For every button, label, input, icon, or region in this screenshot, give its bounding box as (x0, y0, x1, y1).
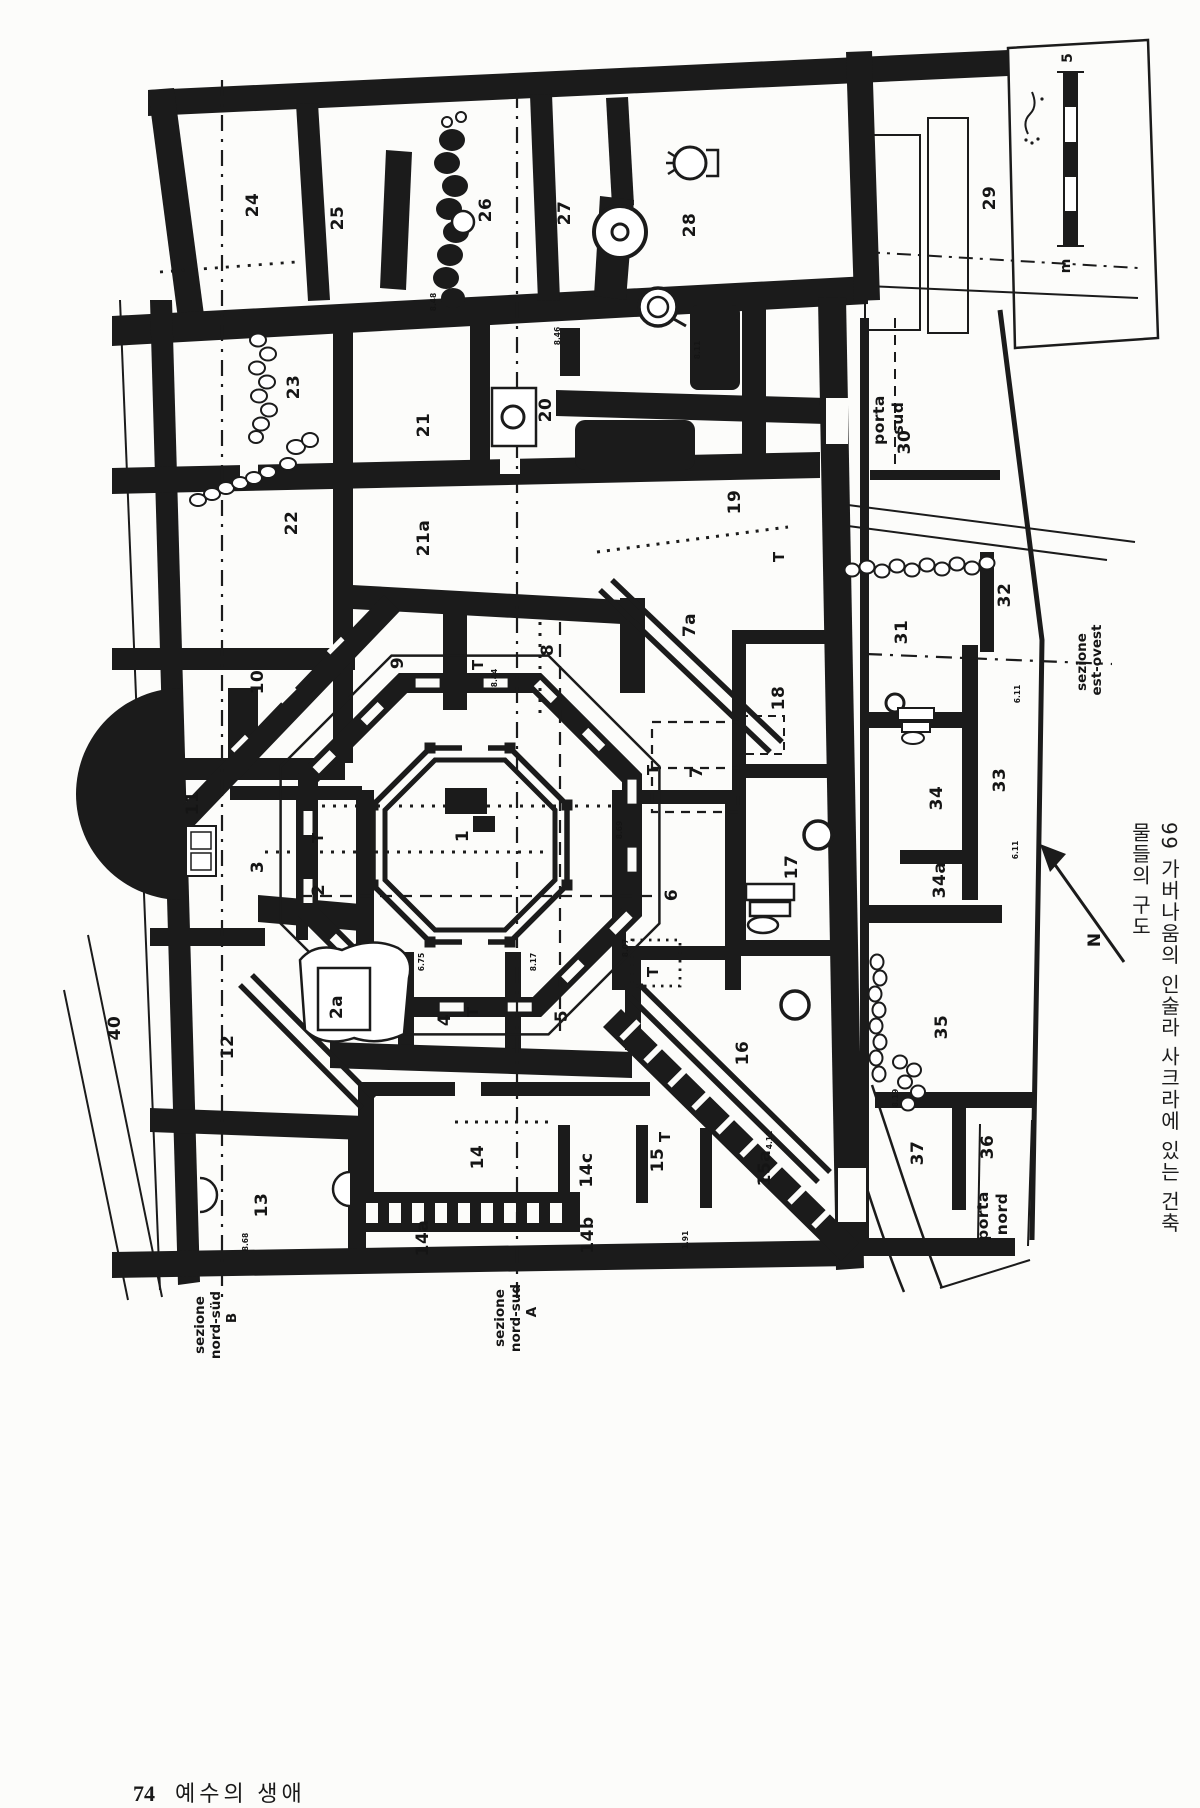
elevation-mark-8.11: 8.11 (693, 341, 702, 360)
room-label-20: 20 (536, 398, 556, 423)
room-label-23: 23 (284, 375, 304, 400)
room-label-19: 19 (725, 490, 745, 515)
room-label-34: 34 (927, 786, 947, 811)
book-title: 예수의 생애 (175, 1776, 306, 1808)
column-base (452, 211, 474, 233)
north-label: N (1085, 933, 1105, 947)
room-label-7: 7 (687, 766, 707, 778)
room-label-32: 32 (995, 583, 1015, 608)
trench-marker-T: T (644, 966, 662, 977)
elevation-mark-6.11: 6.11 (1013, 685, 1022, 704)
room-label-14c: 14c (577, 1152, 597, 1187)
elevation-mark-8.46: 8.46 (553, 327, 562, 346)
scale-unit-label: m (1058, 259, 1074, 274)
inner-octagon-outer-line (373, 748, 567, 942)
elevation-mark-8.48: 8.48 (429, 293, 438, 312)
trench-marker-T: T (644, 764, 662, 775)
room-label-11: 11 (183, 791, 203, 816)
press-basin-icon (674, 147, 706, 179)
elevation-mark-6.75: 6.75 (417, 953, 426, 972)
sezione-nord-sud-b-label: nord-süd (208, 1291, 224, 1359)
sezione-nord-sud-b-label: B (224, 1313, 240, 1323)
porta-sud-label: sud (889, 402, 907, 435)
cistern-icon (781, 991, 809, 1019)
sezione-nord-sud-b-label: sezione (192, 1296, 208, 1354)
elevation-mark-1.91: 1.91 (681, 1231, 690, 1250)
elevation-mark-8.17: 8.17 (529, 953, 538, 972)
trench-marker-T: T (309, 832, 327, 843)
door-arc (200, 1178, 217, 1212)
page-footer: 74 예수의 생애 (133, 1776, 306, 1808)
room-label-7a: 7a (680, 613, 700, 637)
room-label-21: 21 (414, 413, 434, 438)
elevation-mark-8.69: 8.69 (615, 821, 624, 840)
room-label-26: 26 (476, 198, 496, 223)
elevation-mark-6.11: 6.11 (1011, 841, 1020, 860)
room-label-8: 8 (538, 644, 558, 656)
room-label-14: 14 (468, 1145, 488, 1170)
room-label-4: 4 (435, 1014, 455, 1026)
sezione-nord-sud-a-label: nord-sud (508, 1284, 524, 1352)
handwritten-annotation (1025, 92, 1034, 134)
octagon-piers (368, 743, 573, 948)
room-label-17: 17 (782, 855, 802, 880)
elevation-mark-4.11: 4.11 (765, 1131, 774, 1150)
elevation-mark-8.44: 8.44 (490, 669, 499, 688)
sezione-nord-sud-a-label: A (524, 1306, 540, 1317)
scale-max-label: 5 (1060, 53, 1076, 63)
room-label-27: 27 (555, 201, 575, 226)
room-label-40: 40 (105, 1016, 125, 1041)
trench-marker-T: T (464, 1006, 482, 1017)
room-label-6: 6 (662, 889, 682, 901)
cistern-icon (502, 406, 524, 428)
porta-sud-label: porta (870, 395, 888, 445)
room-label-9: 9 (388, 657, 408, 669)
room-label-2: 2 (309, 884, 329, 896)
room-label-15: 15 (648, 1148, 668, 1173)
site-plan-capernaum: 5 m N porta sud porta nord sezione est-o… (0, 0, 1200, 1800)
room-label-14a: 14a (413, 1220, 433, 1257)
room-label-22: 22 (282, 511, 302, 536)
page-number: 74 (133, 1781, 155, 1807)
cistern-icon (804, 821, 832, 849)
elevation-mark-8.07: 8.07 (621, 939, 630, 958)
porta-nord-label: nord (993, 1193, 1011, 1235)
pebble-wall-cardo (869, 955, 926, 1111)
room-label-14b: 14b (578, 1216, 598, 1253)
sezione-est-ovest-label: est-ovest (1089, 624, 1105, 696)
room-label-28: 28 (680, 213, 700, 238)
trench-marker-T: T (770, 551, 788, 562)
scale-bar: 5 m (1024, 53, 1084, 273)
room-label-37: 37 (908, 1141, 928, 1166)
pebble-wall-east (845, 557, 995, 578)
room-label-34a: 34a (930, 862, 950, 899)
room-label-30: 30 (895, 430, 915, 455)
room-label-18: 18 (769, 686, 789, 711)
room-label-15a: 15a (755, 1150, 775, 1187)
door-arc (333, 1172, 350, 1206)
room-label-33: 33 (990, 768, 1010, 793)
trench-marker-T: T (469, 659, 487, 670)
figure-caption: 99 가버나움의 인술라 사크라에 있는 건축물들의 구도 (1140, 822, 1184, 1252)
room-label-36: 36 (978, 1135, 998, 1160)
elevation-mark-8.19: 8.19 (891, 1089, 900, 1108)
room-label-31: 31 (892, 620, 912, 645)
sezione-est-ovest-label: sezione (1074, 633, 1090, 691)
room-label-24: 24 (243, 193, 263, 218)
pebble-wall-room23 (249, 334, 277, 444)
porta-nord-label: porta (974, 1191, 992, 1241)
room-label-35: 35 (932, 1015, 952, 1040)
room-label-25: 25 (328, 206, 348, 231)
room-label-29: 29 (980, 186, 1000, 211)
trench-marker-T: T (656, 1131, 674, 1142)
room-label-13: 13 (252, 1193, 272, 1218)
room-label-2a: 2a (327, 995, 347, 1019)
sezione-nord-sud-a-label: sezione (492, 1289, 508, 1347)
room-label-1: 1 (453, 830, 473, 842)
room-label-10: 10 (248, 670, 268, 695)
room-label-16: 16 (733, 1041, 753, 1066)
scanned-book-page: 5 m N porta sud porta nord sezione est-o… (0, 0, 1200, 1800)
room-label-12: 12 (218, 1035, 238, 1060)
room-label-21a: 21a (414, 520, 434, 557)
column-base (746, 884, 794, 900)
room-label-3: 3 (248, 861, 268, 873)
north-arrow: N (1040, 844, 1124, 962)
room-label-5: 5 (552, 1010, 572, 1022)
elevation-mark-8.68: 8.68 (241, 1233, 250, 1252)
inner-octagon-inner-line (385, 760, 555, 930)
